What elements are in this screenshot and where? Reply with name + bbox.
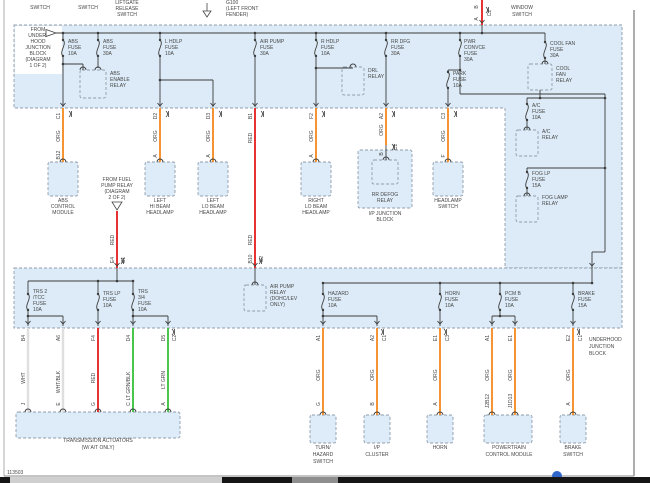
component-box: [364, 415, 390, 443]
pin-d2: D2: [153, 113, 159, 120]
fuse-brake-3: 15A: [578, 303, 588, 309]
lbl-ujb-3: BLOCK: [589, 351, 607, 357]
connector-bracket-icon: [261, 111, 263, 117]
fuse-hazard-3: 10A: [328, 303, 338, 309]
fuse-terminal: [159, 39, 161, 41]
lbl-switch-1: SWITCH: [30, 5, 50, 11]
lbl-window-2: SWITCH: [512, 12, 532, 18]
term-g-2: G: [316, 402, 322, 406]
comp-brakesw-1: BRAKE: [565, 445, 583, 451]
fuse-terminal: [97, 309, 99, 311]
wire-org-4: ORG: [309, 130, 315, 142]
wiring-diagram-canvas: SWITCHSWITCHLIFTGATERELEASESWITCHG100(LE…: [0, 0, 650, 483]
connector-bracket-icon: [454, 111, 456, 117]
lbl-fromujb-7: 1 OF 2): [30, 63, 47, 69]
wcol-whtblk: WHT/BLK: [56, 370, 62, 393]
junction-dot: [481, 32, 484, 35]
wire-org-6: ORG: [441, 130, 447, 142]
conn-e2-c1: C1: [578, 335, 584, 342]
pin-haz-a1: A1: [316, 335, 322, 341]
pin-brake-e2: E2: [566, 335, 572, 341]
component-box: [427, 415, 453, 443]
fuse-terminal: [459, 39, 461, 41]
comp-trans-1: TRANSMISSION ACTUATORS: [63, 438, 133, 444]
wcol-ltgrn: LT GRN: [161, 371, 167, 389]
component-box: [145, 162, 175, 196]
connector-bracket-icon: [322, 111, 324, 117]
fuse-horn-3: 10A: [445, 303, 455, 309]
junction-dot: [322, 282, 325, 285]
fuse-terminal: [459, 55, 461, 57]
pin-a6: A6: [56, 335, 62, 341]
junction-dot: [62, 32, 65, 35]
junction-dot: [132, 315, 135, 318]
pin-pcm-a1: A1: [485, 335, 491, 341]
doc-number: 113503: [7, 470, 24, 476]
connector-bracket-icon: [69, 111, 71, 117]
conn-e4-c1: C1: [121, 257, 127, 264]
connector-bracket-icon: [219, 111, 221, 117]
wire-org-5: ORG: [379, 124, 385, 136]
term-e: E: [56, 402, 62, 406]
fuse-terminal: [526, 119, 528, 121]
wire-org-2: ORG: [153, 130, 159, 142]
fuse-abs2-3: 30A: [103, 51, 113, 57]
component-box: [433, 162, 463, 196]
h-scrollbar[interactable]: [0, 477, 650, 483]
fuse-terminal: [315, 39, 317, 41]
component-box: [310, 415, 336, 443]
component-box: [484, 415, 532, 443]
term-a-6: A: [566, 402, 572, 406]
pin-pcm-e1: E1: [508, 335, 514, 341]
fuse-terminal: [526, 171, 528, 173]
component-box: [48, 162, 78, 196]
connector-bracket-icon: [172, 329, 174, 335]
fuse-terminal: [544, 57, 546, 59]
h-scrollbar-thumb[interactable]: [10, 477, 222, 483]
fuse-terminal: [385, 55, 387, 57]
junction-dot: [459, 32, 462, 35]
comp-turnhaz-1: TURN/: [315, 445, 331, 451]
comp-ipcluster-2: CLUSTER: [365, 452, 389, 458]
comp-pcm-1: POWERTRAIN: [492, 445, 526, 451]
fuse-abs1-3: 10A: [68, 51, 78, 57]
wire-red-b10: RED: [248, 234, 254, 245]
fuse-terminal: [254, 39, 256, 41]
ground-icon: [203, 3, 211, 17]
lbl-ujb-1: UNDERHOOD: [589, 337, 622, 343]
wcol-red: RED: [91, 372, 97, 383]
comp-ipcluster-1: I/P: [374, 445, 381, 451]
wcol-org-5: ORG: [508, 369, 514, 381]
component-box: [342, 67, 364, 95]
fuse-trs34-4: 10A: [138, 307, 148, 313]
wiring-diagram-page: SWITCHSWITCHLIFTGATERELEASESWITCHG100(LE…: [0, 0, 650, 483]
comp-pcm-2: CONTROL MODULE: [485, 452, 533, 458]
connector-bracket-icon: [381, 329, 383, 335]
connector-bracket-icon: [577, 329, 579, 335]
comp-horn: HORN: [433, 445, 448, 451]
lbl-g100-3: FENDER): [226, 12, 249, 18]
fuse-rhdlp-3: 10A: [321, 51, 331, 57]
fuse-terminal: [499, 293, 501, 295]
junction-dot: [132, 280, 135, 283]
pin-d3: D3: [206, 113, 212, 120]
fuse-foglp-3: 15A: [532, 183, 542, 189]
junction-dot: [254, 32, 257, 35]
pin-top-a: A: [474, 17, 480, 21]
relay-foglamp-2: RELAY: [542, 201, 559, 207]
fuse-trs2-4: 10A: [33, 307, 43, 313]
fuse-terminal: [544, 41, 546, 43]
junction-dot: [322, 315, 325, 318]
fuse-terminal: [254, 55, 256, 57]
pin-b10: B10: [248, 254, 254, 263]
junction-dot: [27, 315, 30, 318]
pin-horn-e1: E1: [433, 335, 439, 341]
fuse-terminal: [97, 293, 99, 295]
relay-ac-2: RELAY: [542, 135, 559, 141]
fuse-terminal: [447, 71, 449, 73]
lbl-window-1: WINDOW: [511, 5, 533, 11]
term-a-2: A: [206, 154, 212, 158]
wcol-org-3: ORG: [433, 369, 439, 381]
comp-trans-2: (W/ A/T ONLY): [82, 445, 115, 451]
term-g: G: [91, 402, 97, 406]
junction-dot: [604, 97, 607, 100]
wcol-org-1: ORG: [316, 369, 322, 381]
pin-d5: D5: [161, 335, 167, 342]
component-box: [560, 415, 586, 443]
connector-bracket-icon: [166, 111, 168, 117]
comp-absmod-3: MODULE: [52, 210, 74, 216]
fuse-terminal: [322, 293, 324, 295]
fuse-terminal: [526, 103, 528, 105]
pin-b4: B4: [21, 335, 27, 341]
comp-hdlpsw-2: SWITCH: [438, 204, 458, 210]
component-box: [516, 196, 538, 222]
component-box: [244, 285, 266, 311]
wcol-org-4: ORG: [485, 369, 491, 381]
term-c: C: [126, 402, 132, 406]
lbl-liftgate-3: SWITCH: [117, 12, 137, 18]
term-a-1: A: [153, 154, 159, 158]
lbl-fuelpump-4: 2 OF 2): [109, 195, 126, 201]
h-scrollbar-segment[interactable]: [292, 477, 338, 483]
fuse-park-3: 10A: [453, 83, 463, 89]
comp-turnhaz-3: SWITCH: [313, 459, 333, 465]
fuse-terminal: [62, 55, 64, 57]
comp-llobeam-3: HEADLAMP: [199, 210, 227, 216]
connector-bracket-icon: [444, 329, 446, 335]
fuse-terminal: [439, 293, 441, 295]
fuse-rrdfg-3: 30A: [391, 51, 401, 57]
fuse-terminal: [27, 309, 29, 311]
fuse-terminal: [27, 293, 29, 295]
junction-dot: [439, 282, 442, 285]
component-box: [16, 412, 180, 438]
comp-brakesw-2: SWITCH: [563, 452, 583, 458]
fuse-pcmb-3: 10A: [505, 303, 515, 309]
relay-drl-2: RELAY: [368, 74, 385, 80]
pin-f4: F4: [91, 335, 97, 341]
pin-c3: C3: [441, 113, 447, 120]
lbl-switch-2: SWITCH: [78, 5, 98, 11]
term-a-3: A: [309, 154, 315, 158]
junction-dot: [62, 63, 65, 66]
wire-red-e4: RED: [110, 234, 116, 245]
component-box: [80, 70, 106, 98]
wcol-org-6: ORG: [566, 369, 572, 381]
junction-dot: [539, 97, 542, 100]
conn-top-c2: C2: [487, 10, 493, 17]
junction-dot: [159, 32, 162, 35]
fuse-terminal: [132, 293, 134, 295]
conn-d5-c2: C2: [172, 335, 178, 342]
fuse-terminal: [315, 55, 317, 57]
wire-org-1: ORG: [56, 130, 62, 142]
term-b12: B12: [56, 150, 62, 159]
term-a-4: A: [161, 402, 167, 406]
pin-d4: D4: [126, 335, 132, 342]
comp-rrdefog-2: RELAY: [377, 198, 394, 204]
conn-e1-c3: C3: [445, 335, 451, 342]
term-f: F: [441, 154, 447, 157]
term-j1d13: J1D13: [508, 394, 514, 409]
pin-b1: B1: [248, 113, 254, 119]
fuse-airpump-3: 30A: [260, 51, 270, 57]
fuse-terminal: [159, 55, 161, 57]
junction-dot: [604, 167, 607, 170]
connector-bracket-icon: [392, 111, 394, 117]
fuse-terminal: [499, 309, 501, 311]
comp-rlobeam-3: HEADLAMP: [302, 210, 330, 216]
comp-lhibeam-3: HEADLAMP: [146, 210, 174, 216]
fuse-coolfan-3: 30A: [550, 53, 560, 59]
wire-org-3: ORG: [206, 130, 212, 142]
fuse-terminal: [526, 187, 528, 189]
term-b-2: B: [370, 402, 376, 406]
junction-dot: [591, 282, 594, 285]
junction-dot: [315, 67, 318, 70]
pin-f2: F2: [309, 113, 315, 119]
conn-defog-c1: C1: [393, 144, 399, 151]
term-j: J: [21, 402, 27, 405]
pin-c1: C1: [56, 113, 62, 120]
junction-dot: [116, 280, 119, 283]
pin-haz-a2: A2: [370, 335, 376, 341]
comp-turnhaz-2: HAZARD: [313, 452, 334, 458]
relay-absenable-3: RELAY: [110, 83, 127, 89]
fuse-terminal: [62, 39, 64, 41]
fuse-terminal: [385, 39, 387, 41]
fuse-terminal: [439, 309, 441, 311]
junction-dot: [97, 280, 100, 283]
junction-dot: [499, 282, 502, 285]
term-j2b12: J2B12: [485, 394, 491, 408]
junction-dot: [315, 32, 318, 35]
pin-a2: A2: [379, 113, 385, 119]
fuse-trslp-3: 10A: [103, 303, 113, 309]
fuse-terminal: [447, 87, 449, 89]
conn-a2-c1: C1: [382, 335, 388, 342]
component-box: [198, 162, 228, 196]
fuse-terminal: [132, 309, 134, 311]
fuse-terminal: [97, 55, 99, 57]
junction-dot: [385, 32, 388, 35]
junction-dot: [159, 79, 162, 82]
fuse-ac-3: 10A: [532, 115, 542, 121]
junction-dot: [572, 282, 575, 285]
wcol-org-2: ORG: [370, 369, 376, 381]
fuel-pump-relay-connector-icon: [112, 202, 122, 210]
comp-ipjb-2: BLOCK: [377, 217, 395, 223]
pin-top-b: B: [474, 5, 480, 9]
component-box: [516, 130, 538, 156]
wcol-ltgrnblk: LT GRN/BLK: [126, 371, 132, 400]
lbl-ujb-2: JUNCTION: [589, 344, 615, 350]
fuse-terminal: [97, 39, 99, 41]
conn-b10-c2: C2: [259, 256, 265, 263]
component-box: [301, 162, 331, 196]
fuse-terminal: [572, 309, 574, 311]
relay-airpump-4: ONLY): [270, 302, 285, 308]
component-box: [528, 64, 552, 90]
wcol-wht: WHT: [21, 372, 27, 383]
junction-dot: [97, 32, 100, 35]
fuse-terminal: [572, 293, 574, 295]
fuse-pwr-4: 30A: [464, 57, 474, 63]
fuse-lhdlp-3: 10A: [165, 51, 175, 57]
term-a-5: A: [433, 402, 439, 406]
fuse-terminal: [322, 309, 324, 311]
wire-red-1: RED: [248, 132, 254, 143]
relay-coolfan-3: RELAY: [556, 78, 573, 84]
pin-e4: E4: [110, 257, 116, 263]
junction-dot: [499, 315, 502, 318]
